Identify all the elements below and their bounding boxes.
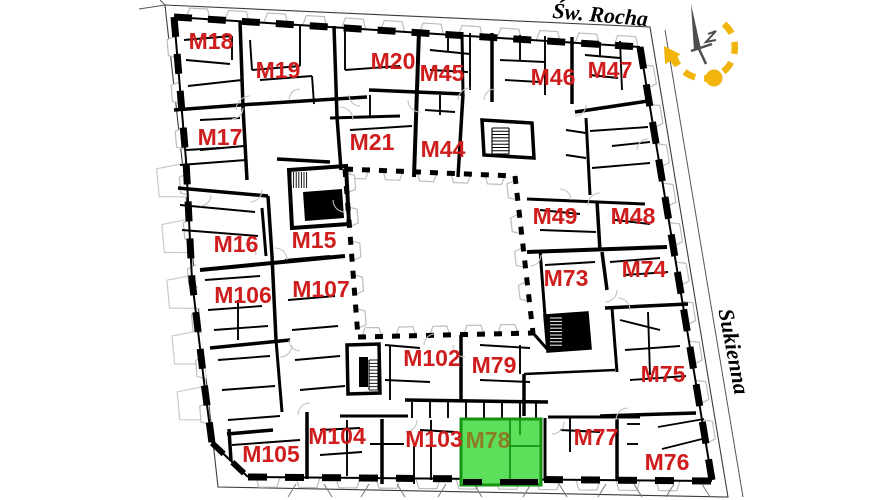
svg-text:M16: M16 [214, 231, 259, 257]
svg-text:M107: M107 [292, 276, 350, 302]
svg-text:M105: M105 [242, 441, 300, 467]
svg-text:M78: M78 [466, 427, 511, 453]
svg-text:M49: M49 [533, 203, 578, 229]
svg-text:M18: M18 [189, 28, 234, 54]
svg-text:M46: M46 [531, 64, 576, 90]
svg-text:M20: M20 [371, 48, 416, 74]
svg-text:M75: M75 [641, 361, 686, 387]
svg-text:M21: M21 [350, 129, 395, 155]
svg-text:M17: M17 [198, 124, 243, 150]
svg-text:M47: M47 [588, 57, 633, 83]
svg-text:M73: M73 [544, 265, 589, 291]
svg-text:M45: M45 [420, 60, 465, 86]
svg-text:M15: M15 [292, 227, 337, 253]
svg-text:M104: M104 [308, 423, 366, 449]
svg-text:M19: M19 [256, 57, 301, 83]
svg-text:M48: M48 [611, 203, 656, 229]
svg-text:M77: M77 [574, 424, 619, 450]
svg-text:M102: M102 [403, 345, 461, 371]
svg-text:M106: M106 [214, 282, 272, 308]
svg-text:M79: M79 [472, 352, 517, 378]
svg-text:M76: M76 [645, 449, 690, 475]
svg-text:M74: M74 [622, 256, 667, 282]
svg-text:M44: M44 [421, 136, 466, 162]
svg-text:M103: M103 [405, 426, 463, 452]
